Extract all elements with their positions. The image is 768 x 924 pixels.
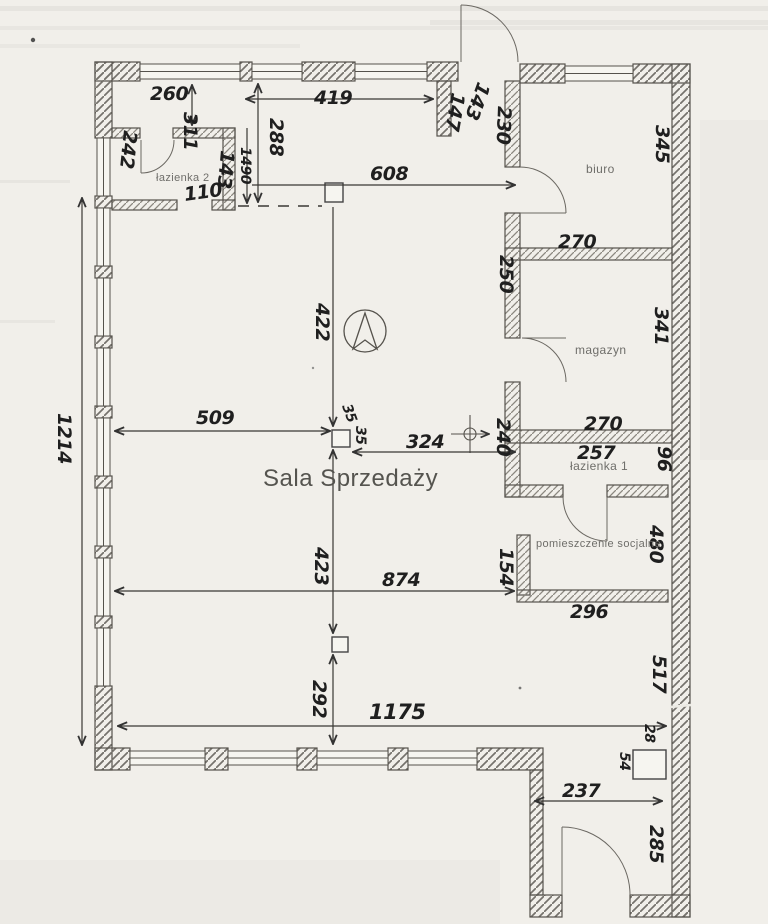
window-biuro [565,66,633,81]
dim-423: 423 [310,546,332,585]
wall-vestibule-left [530,770,543,895]
dim-270-biuro: 270 [558,231,596,253]
wall-segment [427,62,458,81]
wall-left-pier [95,266,112,278]
scan-streak [0,860,500,924]
dim-270-magazyn: 270 [584,413,622,435]
window [408,751,477,765]
room-label-biuro: biuro [586,162,615,176]
window [97,488,110,546]
window [317,751,388,765]
room-label-socjalne: pomieszczenie socjalne [536,538,661,550]
dim-237: 237 [562,780,601,802]
wall-segment [240,62,252,81]
window [97,628,110,686]
scan-speck [519,687,522,690]
scan-streak [0,6,768,11]
wall-bottom-pier [205,748,228,770]
scan-speck [312,367,314,369]
scan-streak [0,180,70,183]
wall-socjalne-west [517,535,530,595]
dim-242: 242 [115,129,141,170]
wall-left-pier [95,546,112,558]
wall-lazienka1-south [505,485,563,497]
main-room-title: Sala Sprzedaży [263,465,438,492]
dim-422: 422 [311,302,333,341]
scan-streak [0,320,55,323]
room-label-lazienka1: łazienka 1 [570,459,628,473]
wall-bottom-pier [477,748,543,770]
wall-left-pier [95,406,112,418]
wall-right [672,64,690,917]
scan-speck [31,38,35,42]
wall-bottom-right [530,895,562,917]
dim-240: 240 [492,418,514,456]
column-1 [325,183,343,202]
wall-left-pier [95,336,112,348]
dim-285: 285 [645,825,667,863]
room-label-magazyn: magazyn [575,343,627,357]
dim-419: 419 [313,87,352,109]
wall-bottom-pier [297,748,317,770]
scan-streak [430,20,768,25]
window [228,751,297,765]
window [140,64,240,79]
window [252,64,302,79]
dim-260: 260 [150,83,188,105]
column-2 [332,430,350,447]
wall-lazienka1-south [607,485,668,497]
floor-plan-drawing: 260 311 242 110 143 1490 288 419 147 143… [0,0,768,924]
dim-1490: 1490 [237,147,253,185]
dim-1175: 1175 [369,700,425,724]
scan-streak [700,120,768,460]
wall-left-pier [95,62,112,138]
wall-left-pier [95,616,112,628]
dim-143-lazienka2: 143 [213,150,238,190]
dim-341: 341 [650,307,672,345]
dim-311: 311 [179,112,201,150]
wall-bottom-pier [95,748,130,770]
wall-bottom-right [630,895,690,917]
dim-509: 509 [196,407,234,429]
wall-segment [302,62,355,81]
dim-250: 250 [495,255,517,293]
wall-left-pier [95,476,112,488]
dim-96: 96 [653,446,675,472]
window [355,64,427,79]
dim-608: 608 [370,163,408,185]
dim-296: 296 [570,601,608,623]
dim-154: 154 [495,548,517,586]
wall-bottom-pier [388,748,408,770]
dim-35-b: 35 [352,426,368,445]
window [97,208,110,266]
column-3 [332,637,348,652]
dim-28: 28 [641,724,657,743]
dim-517: 517 [648,655,670,694]
window [97,418,110,476]
wall-left-pier [95,196,112,208]
room-label-lazienka2: łazienka 2 [156,172,210,184]
wall-lazienka2-south [112,200,177,210]
scan-streak [0,26,768,30]
dim-230: 230 [492,106,515,145]
window [97,138,110,196]
window [97,558,110,616]
dim-54: 54 [616,752,632,770]
vestibule-box [633,750,666,779]
dim-874: 874 [382,569,420,591]
window [97,278,110,336]
dim-345: 345 [651,125,673,163]
floor-plan-scan: 260 311 242 110 143 1490 288 419 147 143… [0,0,768,924]
window [130,751,205,765]
dim-324: 324 [406,431,444,453]
wall-segment [520,64,565,83]
dim-1214: 1214 [53,413,75,464]
dim-292: 292 [308,680,330,718]
dim-288: 288 [265,118,287,156]
scan-streak [0,44,300,48]
window [97,348,110,406]
